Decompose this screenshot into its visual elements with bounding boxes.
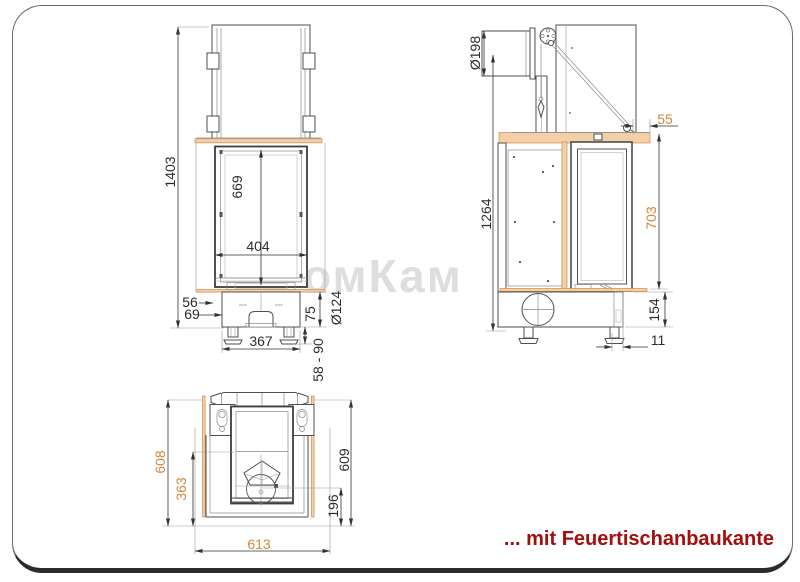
top-view xyxy=(162,393,355,555)
dim-top-table-width: 613 xyxy=(247,537,270,551)
dim-front-connector-dia: Ø124 xyxy=(329,291,343,325)
dim-top-table-depth: 608 xyxy=(153,450,167,473)
dim-front-base-height: 75 xyxy=(303,306,317,322)
dim-top-unit-depth: 609 xyxy=(337,448,351,471)
dim-top-inner-depth: 363 xyxy=(174,477,188,500)
dim-front-leg-range: 58 - 90 xyxy=(311,338,325,382)
technical-drawing-page: омКам xyxy=(0,0,800,582)
dim-side-flue-dia: Ø198 xyxy=(468,36,482,70)
dim-side-leg-offset: 11 xyxy=(651,333,666,347)
dim-side-glass-height: 703 xyxy=(644,206,658,229)
caption-feuertischanbaukante: ... mit Feuertischanbaukante xyxy=(504,528,774,551)
dim-top-fan-offset: 196 xyxy=(326,494,340,517)
dim-side-total-height: 1264 xyxy=(479,198,493,229)
dim-front-firebox-height: 669 xyxy=(230,175,244,198)
dim-front-total-height: 1403 xyxy=(163,156,177,187)
dim-front-firebox-width: 404 xyxy=(246,239,269,253)
fireplace-dimension-drawing xyxy=(0,0,800,582)
dim-front-base-offset: 69 xyxy=(184,307,200,321)
dim-side-base-height: 154 xyxy=(647,298,661,321)
dim-side-table-edge: 55 xyxy=(657,112,673,126)
dim-front-base-width: 367 xyxy=(249,334,272,348)
